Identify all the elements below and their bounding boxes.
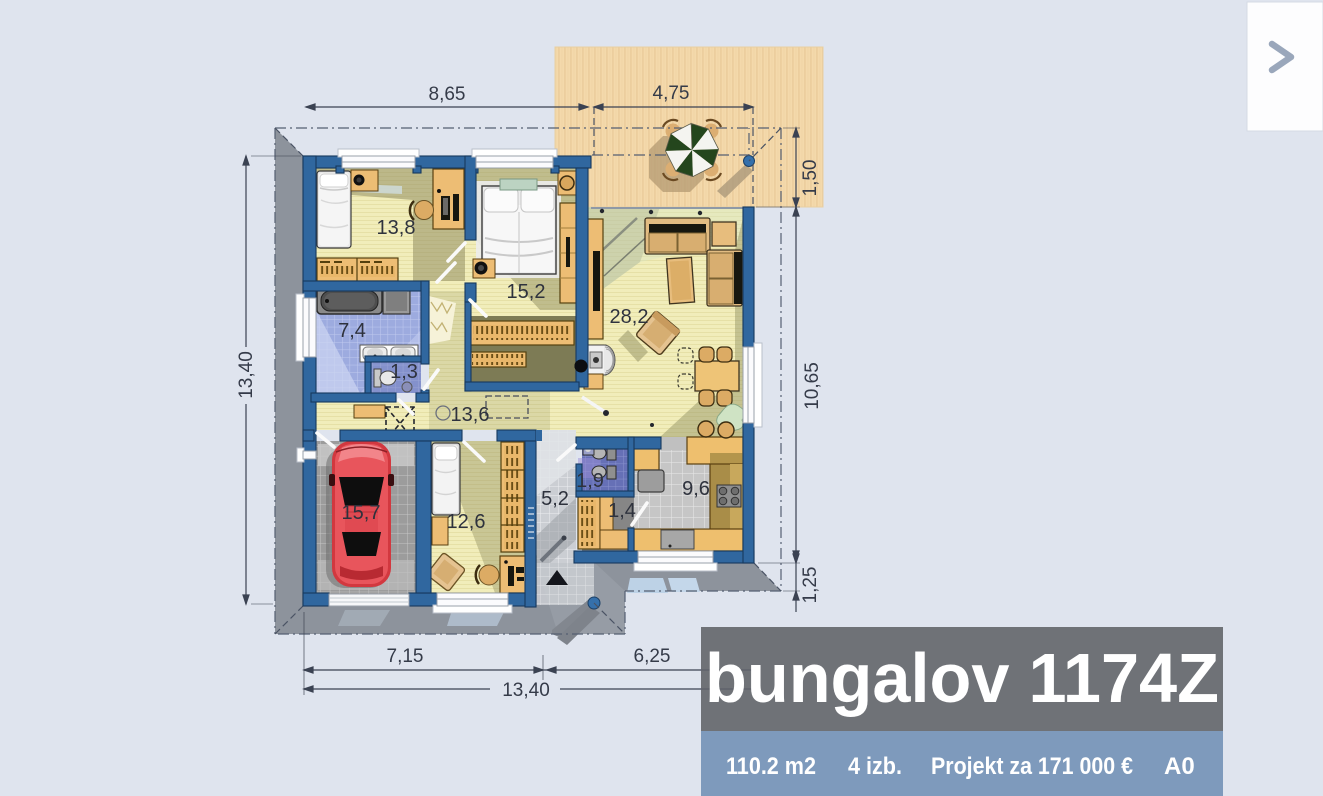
svg-text:Projekt za 171 000 €: Projekt za 171 000 € [931,753,1133,780]
svg-text:8,65: 8,65 [429,84,466,105]
svg-text:15,2: 15,2 [507,281,546,303]
svg-text:9,6: 9,6 [682,478,710,500]
svg-text:10,65: 10,65 [802,362,823,410]
svg-text:15,7: 15,7 [342,502,381,524]
svg-text:28,2: 28,2 [610,306,649,328]
svg-text:6,25: 6,25 [634,646,671,667]
svg-text:13,40: 13,40 [502,680,550,701]
svg-text:7,15: 7,15 [387,646,424,667]
svg-text:1,9: 1,9 [576,470,604,492]
svg-text:13,8: 13,8 [377,217,416,239]
svg-text:7,4: 7,4 [338,320,366,342]
svg-text:bungalov 1174Z: bungalov 1174Z [705,639,1219,717]
svg-text:5,2: 5,2 [541,488,569,510]
svg-text:1,4: 1,4 [608,500,636,522]
svg-text:4,75: 4,75 [653,83,690,104]
svg-text:A0: A0 [1164,753,1195,780]
svg-text:4 izb.: 4 izb. [848,753,902,780]
svg-text:1,25: 1,25 [800,567,821,604]
svg-text:13,40: 13,40 [236,351,257,399]
svg-text:1,50: 1,50 [800,160,821,197]
svg-text:110.2 m2: 110.2 m2 [726,753,816,780]
svg-text:12,6: 12,6 [447,511,486,533]
svg-text:1,3: 1,3 [390,361,418,383]
svg-text:13,6: 13,6 [451,404,490,426]
